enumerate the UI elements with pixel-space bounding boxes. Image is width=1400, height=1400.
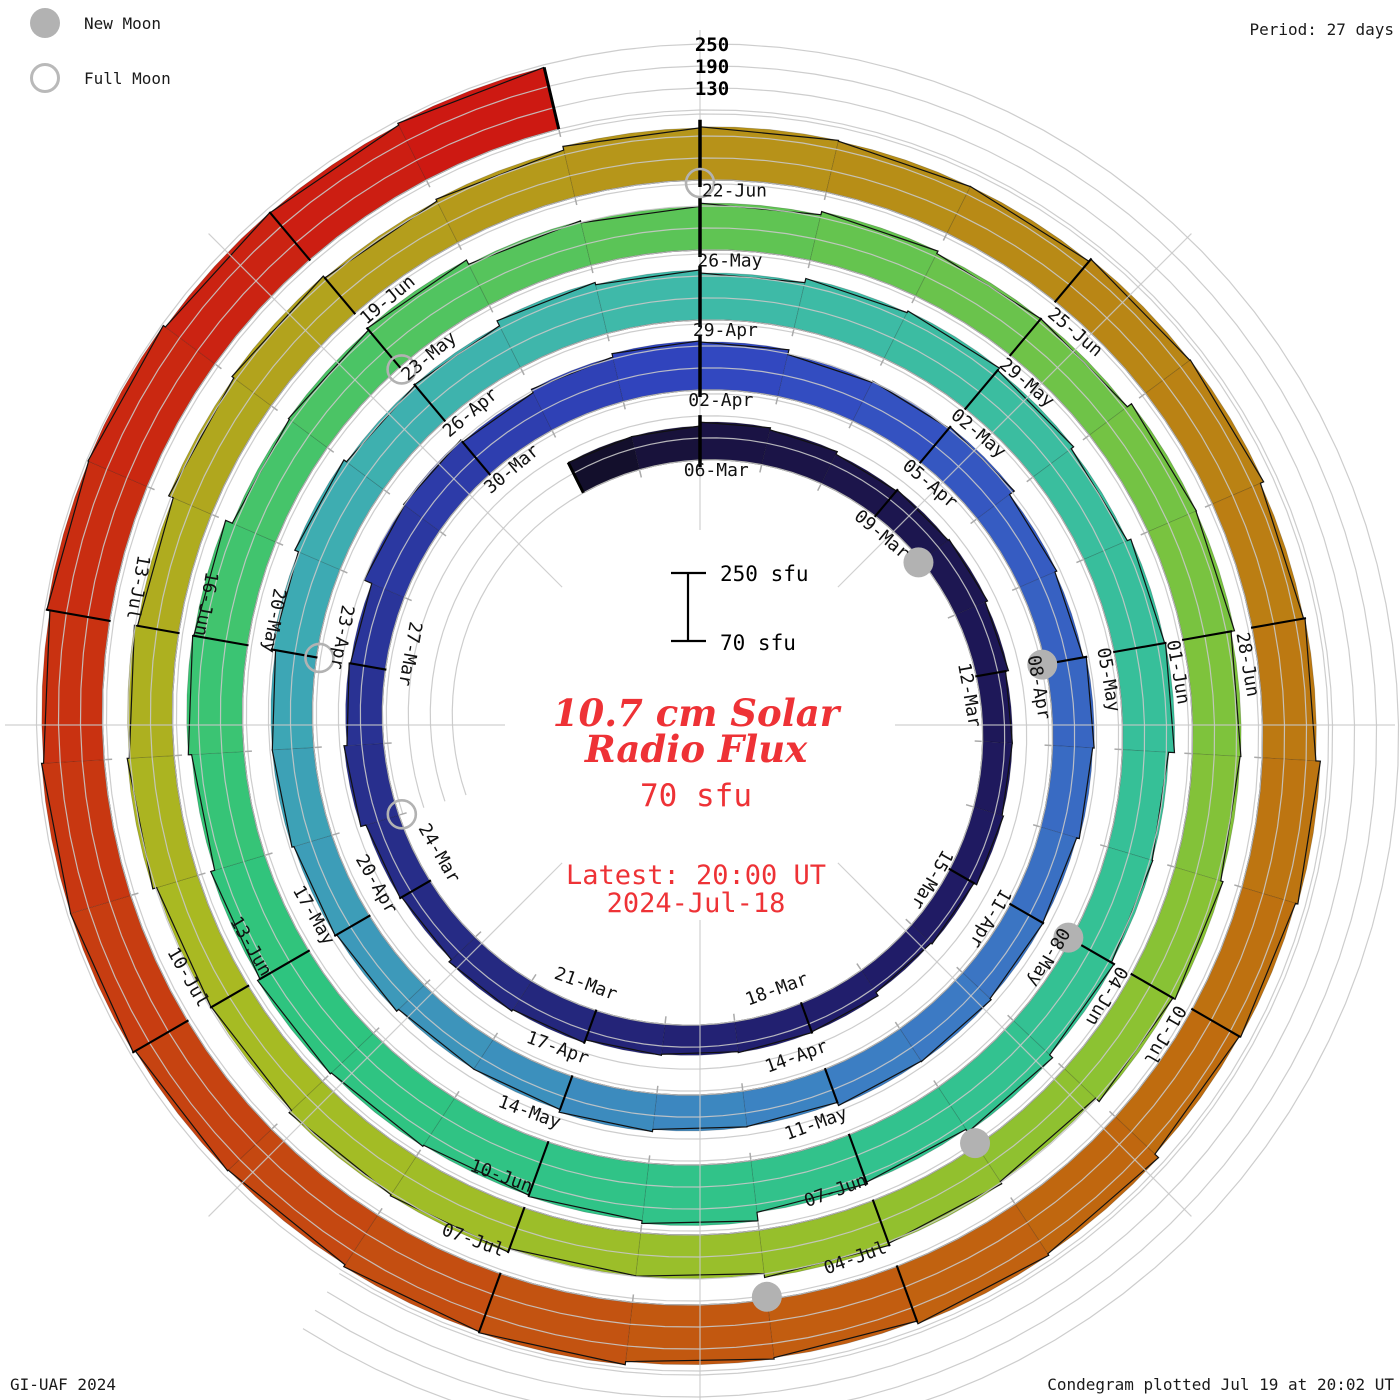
legend-full-moon: Full Moon [30,63,171,93]
flux-day-cell [128,625,179,758]
flux-day-cell [127,756,198,889]
tick-1day [532,974,536,980]
tick-1day [1100,845,1107,847]
latest-time-label: Latest: 20:00 UT [566,860,826,891]
date-label-27-Mar: 27-Mar [394,620,426,688]
flux-day-cell [187,636,248,755]
credit-label: GI-UAF 2024 [10,1375,116,1394]
flux-day-cell [42,610,110,763]
flux-day-cell [596,270,700,334]
flux-day-cell [1084,539,1165,652]
new-moon-marker-05-Jul [752,1282,782,1312]
tick-1day [633,1294,634,1301]
scale-bar-top-label: 250 sfu [720,562,809,586]
radial-axis-190: 190 [695,56,729,78]
flux-day-cell [42,760,131,914]
tick-1day [559,130,561,137]
tick-1day [575,198,577,205]
flux-day-cell [272,747,332,847]
tick-1day [641,1225,642,1232]
plotted-timestamp-label: Condegram plotted Jul 19 at 20:02 UT [1047,1375,1394,1394]
tick-1day [906,919,911,924]
flux-scale-bar [671,573,706,641]
tick-1day [1167,865,1174,867]
tick-1day [607,334,609,341]
tick-1day [818,484,821,490]
tick-1day [624,403,626,410]
tick-1day [1033,825,1040,827]
flux-day-cell [700,422,770,465]
flux-day-cell [479,1274,633,1365]
tick-1day [132,893,139,895]
scale-bar-bottom-label: 70 sfu [720,631,796,655]
tick-1day [750,1153,751,1160]
date-label-22-Jun: 22-Jun [702,180,767,201]
latest-date-label: 2024-Jul-18 [607,888,786,919]
tick-1day [591,266,593,273]
radial-axis-130: 130 [695,78,729,100]
radial-axis: 250 190 130 [695,34,729,100]
radial-axis-250: 250 [695,34,729,56]
tick-1day [760,466,762,473]
tick-1day [476,932,481,937]
date-label-06-Mar: 06-Mar [684,460,749,481]
tick-1day [1234,885,1241,887]
tick-1day [640,471,642,478]
legend-new-moon: New Moon [30,8,161,38]
tick-1day [966,805,973,807]
tick-1day [665,1016,666,1023]
flux-day-cell [346,663,386,745]
tick-1day [808,261,810,268]
tick-1day [824,193,826,200]
flux-day-cell [1242,758,1320,904]
tick-1day [734,1014,735,1021]
new-moon-marker-06-Jun [960,1128,990,1158]
tick-1day [199,873,206,875]
tick-1day [400,813,407,815]
new-moon-label: New Moon [84,14,161,33]
flux-day-cell [1020,572,1084,664]
full-moon-label: Full Moon [84,69,171,88]
flux-day-cell [861,925,931,993]
tick-1day [649,1155,650,1162]
tick-1day [657,1086,658,1093]
tick-1day [758,1222,759,1229]
period-label: Period: 27 days [1250,20,1395,39]
center-titles: 10.7 cm Solar Radio Flux 70 sfu Latest: … [553,691,842,919]
flux-day-cell [563,128,700,197]
date-label-29-Apr: 29-Apr [693,320,758,341]
current-flux-value: 70 sfu [640,778,752,814]
date-label-26-May: 26-May [697,250,762,271]
tick-1day [857,964,861,970]
tick-1day [266,853,273,855]
condegram-plot: 06-Mar09-Mar12-Mar15-Mar18-Mar21-Mar24-M… [0,0,1400,1400]
tick-1day [776,397,778,404]
full-moon-icon [30,63,60,93]
tick-1day [333,833,340,835]
tick-1day [948,615,954,618]
plot-title-line2: Radio Flux [584,727,808,771]
new-moon-icon [30,8,60,38]
tick-1day [792,329,794,336]
tick-1day [742,1083,743,1090]
date-label-02-Apr: 02-Apr [688,390,753,411]
